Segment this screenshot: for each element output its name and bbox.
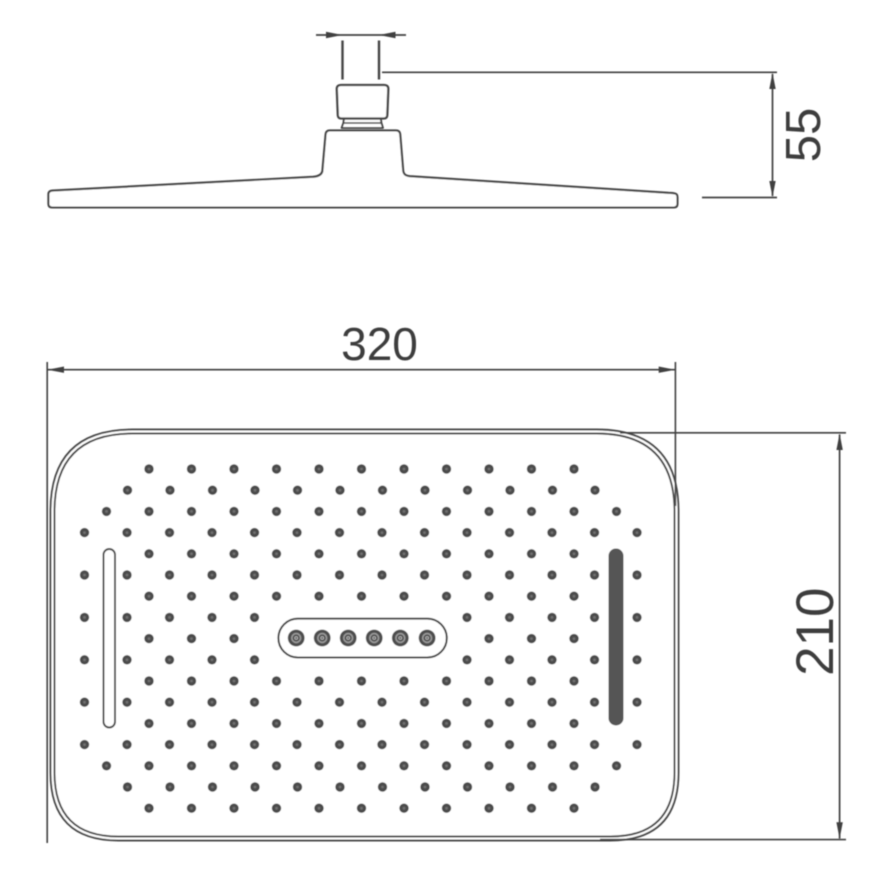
svg-text:320: 320 <box>341 318 418 370</box>
svg-text:55: 55 <box>777 108 831 163</box>
svg-text:210: 210 <box>786 587 845 675</box>
